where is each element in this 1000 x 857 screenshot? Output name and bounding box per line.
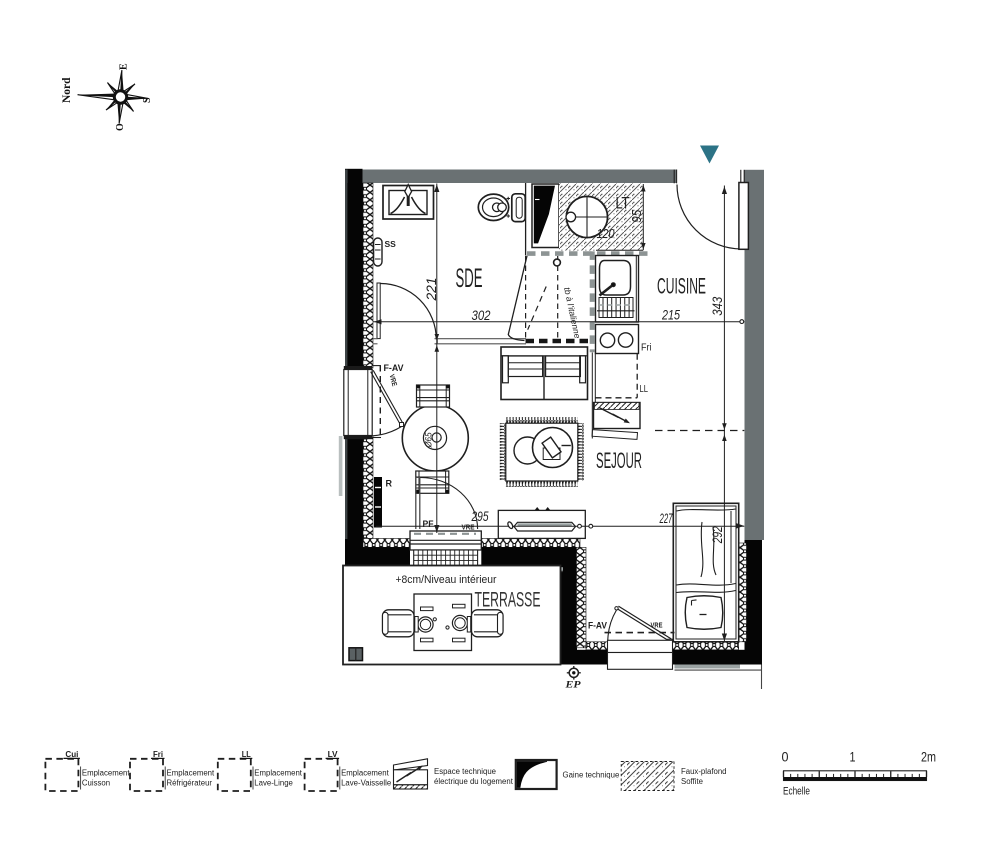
svg-text:F-AV: F-AV — [384, 363, 404, 373]
svg-text:électrique du logement: électrique du logement — [434, 777, 514, 786]
svg-text:95: 95 — [630, 210, 644, 223]
svg-text:PF: PF — [423, 519, 434, 529]
svg-text:CUISINE: CUISINE — [657, 274, 706, 299]
svg-text:TERRASSE: TERRASSE — [475, 589, 541, 612]
svg-text:E: E — [119, 63, 130, 70]
svg-text:LL: LL — [640, 384, 649, 395]
svg-text:292: 292 — [709, 526, 725, 544]
svg-text:EP: EP — [564, 681, 580, 691]
svg-text:Soffite: Soffite — [681, 777, 703, 786]
svg-text:LT: LT — [616, 194, 630, 213]
svg-text:Lave-Linge: Lave-Linge — [254, 779, 293, 788]
svg-text:SDE: SDE — [456, 263, 483, 293]
svg-text:221: 221 — [423, 278, 439, 302]
svg-text:S: S — [142, 97, 153, 103]
svg-text:Emplacement: Emplacement — [254, 769, 303, 778]
svg-text:F-AV: F-AV — [588, 621, 608, 631]
svg-text:Fri: Fri — [641, 343, 652, 354]
svg-text:Gaine technique: Gaine technique — [563, 771, 620, 780]
svg-text:Emplacement: Emplacement — [341, 769, 390, 778]
svg-text:SEJOUR: SEJOUR — [596, 448, 642, 473]
svg-text:VRE: VRE — [651, 621, 663, 630]
svg-text:O: O — [115, 123, 126, 131]
svg-text:Lave-Vaisselle: Lave-Vaisselle — [341, 779, 391, 788]
svg-text:Emplacement: Emplacement — [82, 769, 131, 778]
svg-text:215: 215 — [661, 306, 680, 322]
svg-text:0: 0 — [782, 750, 789, 765]
svg-text:R: R — [386, 479, 393, 489]
svg-text:Nord: Nord — [61, 77, 73, 103]
svg-text:Cuisson: Cuisson — [82, 779, 110, 788]
svg-text:Emplacement: Emplacement — [167, 769, 216, 778]
svg-text:2m: 2m — [921, 750, 936, 765]
svg-text:tb à l'italienne: tb à l'italienne — [562, 286, 583, 339]
svg-text:Ø65: Ø65 — [424, 432, 434, 449]
svg-text:343: 343 — [709, 297, 725, 316]
svg-text:302: 302 — [472, 307, 491, 323]
svg-text:227: 227 — [659, 510, 673, 526]
svg-text:295: 295 — [471, 508, 489, 524]
svg-text:1: 1 — [850, 750, 856, 765]
svg-text:+8cm/Niveau intérieur: +8cm/Niveau intérieur — [396, 574, 497, 586]
svg-text:Espace technique: Espace technique — [434, 767, 496, 776]
svg-text:Réfrigérateur: Réfrigérateur — [167, 779, 213, 788]
svg-text:SS: SS — [385, 239, 397, 249]
svg-text:VRE: VRE — [388, 374, 398, 388]
svg-text:Echelle: Echelle — [783, 786, 810, 798]
svg-text:120: 120 — [597, 227, 615, 241]
svg-text:Faux-plafond: Faux-plafond — [681, 767, 727, 776]
